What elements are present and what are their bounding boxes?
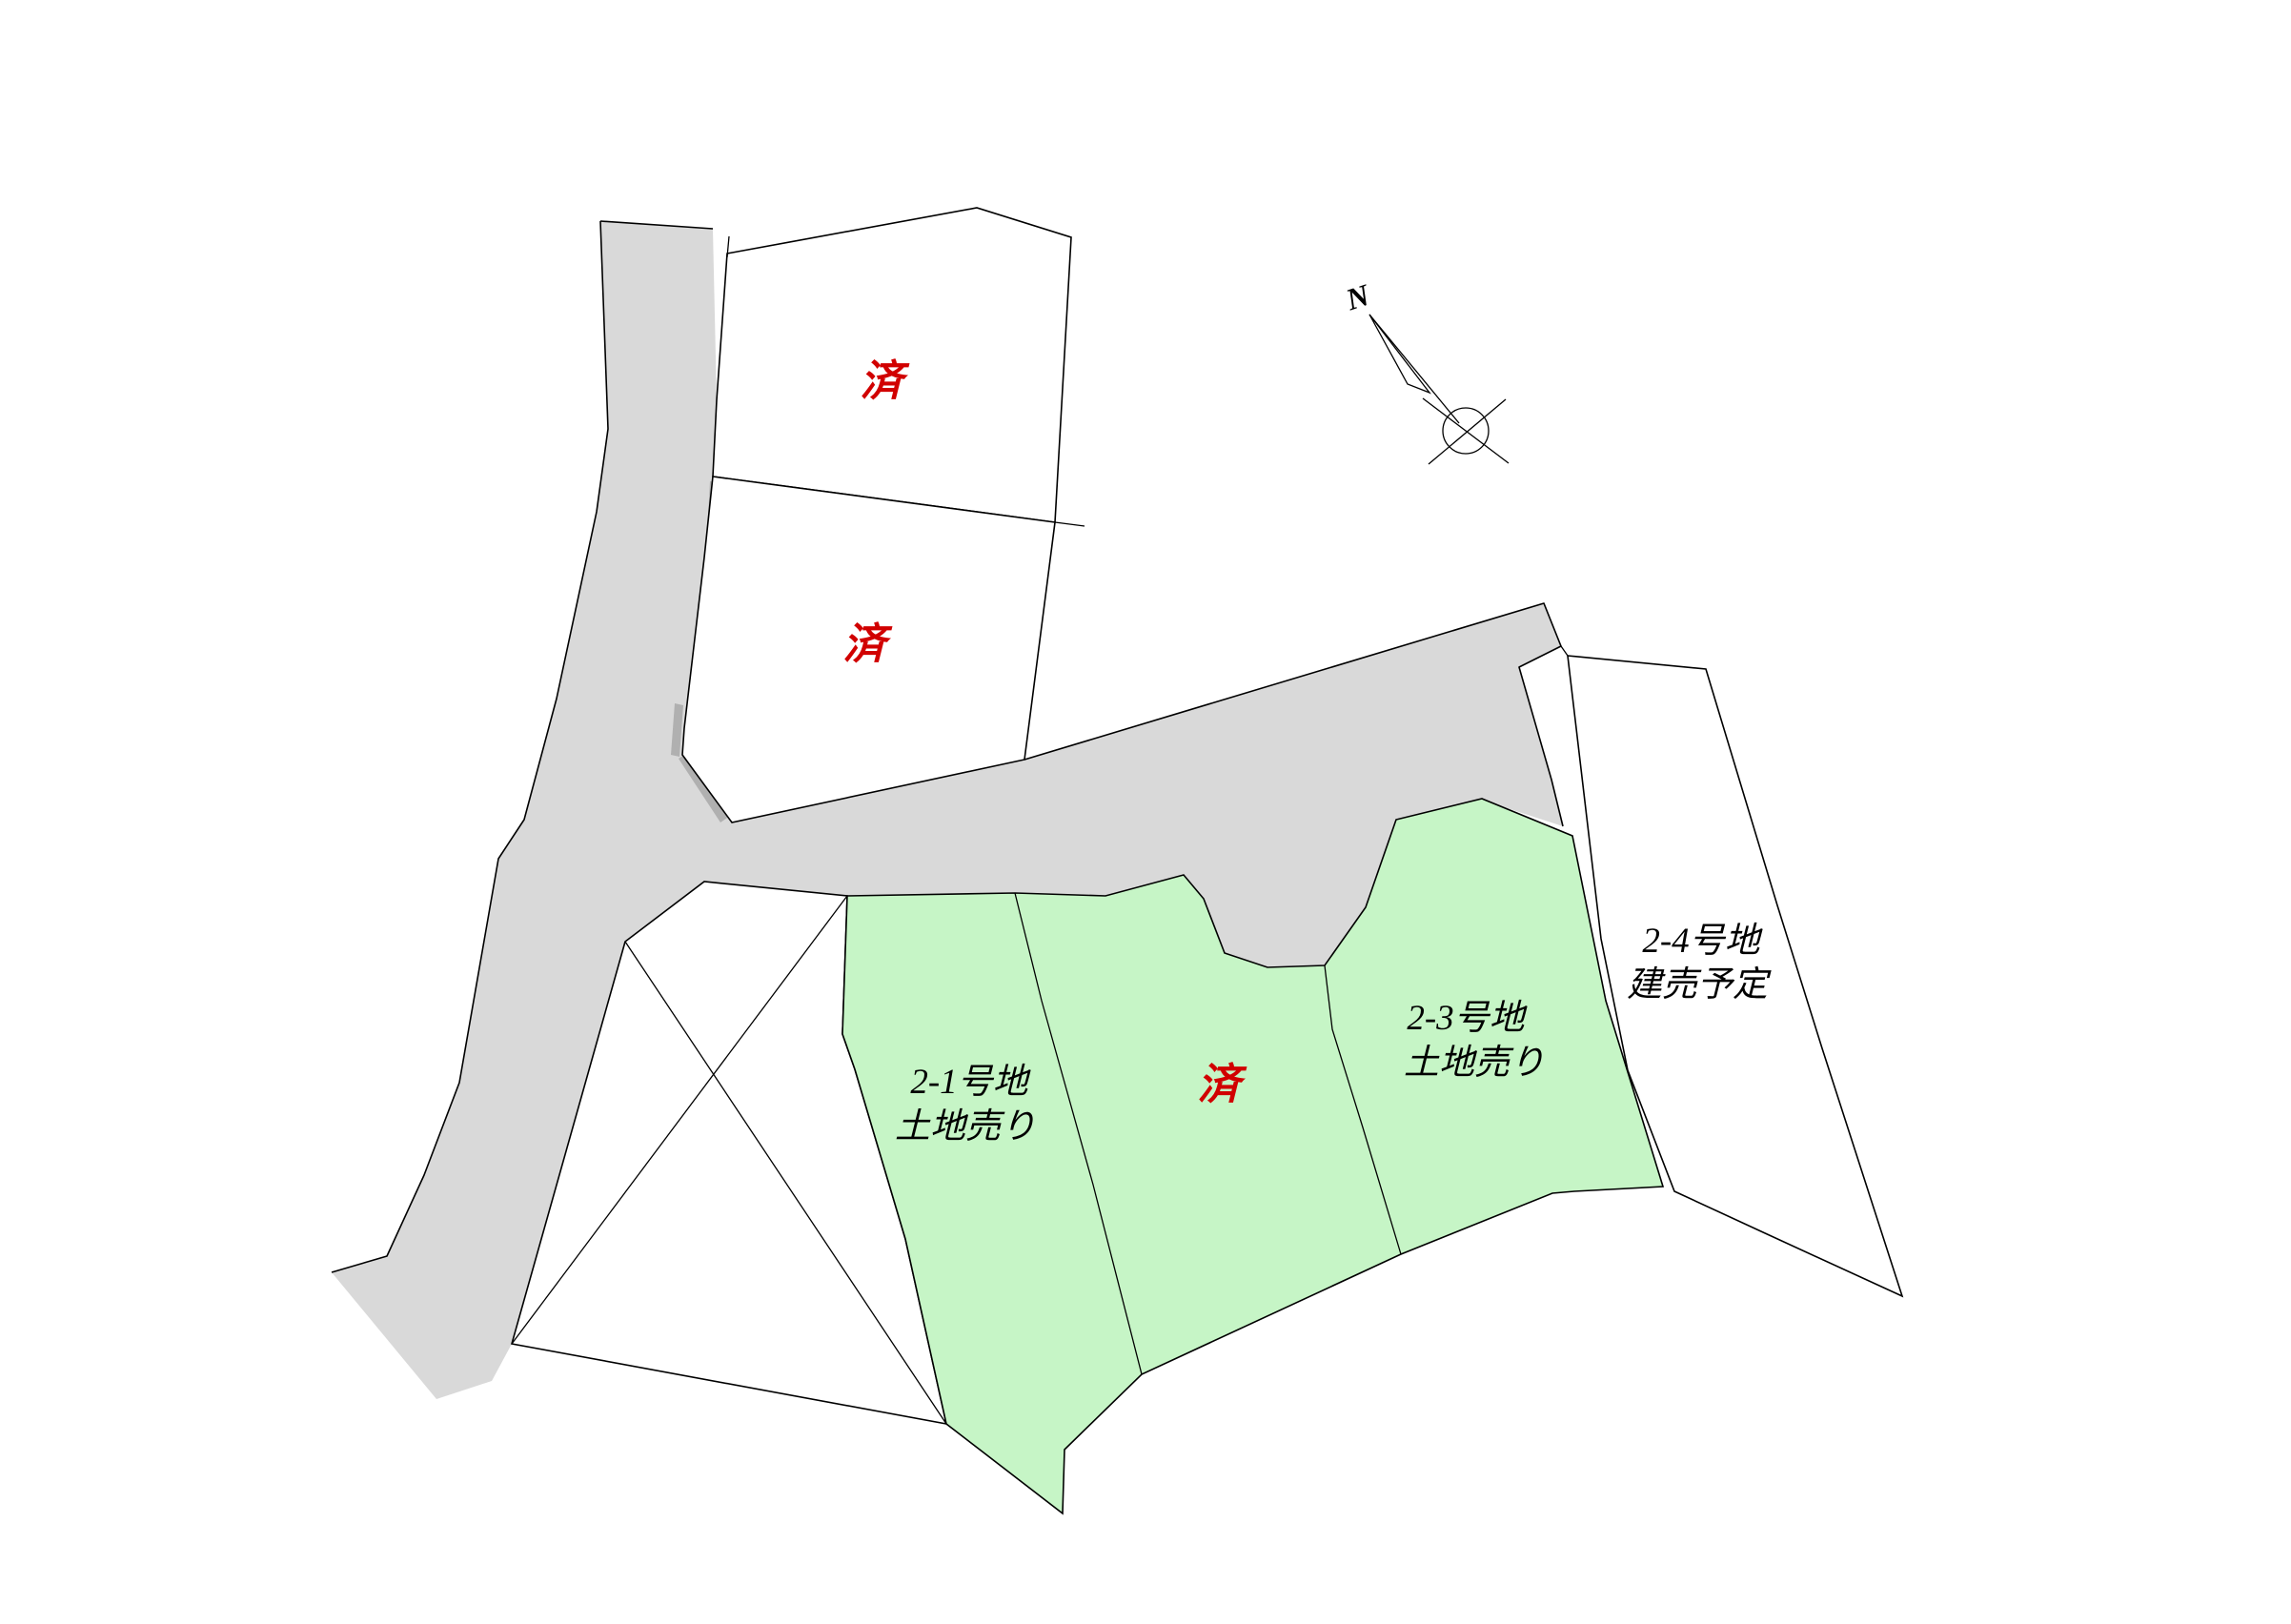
lot-2-4-status: 建売予定 — [1627, 965, 1772, 1005]
lot-2-1-status: 土地売り — [895, 1107, 1036, 1147]
site-plan-map: N 済 済 済 2‐1号地 土地売り 2-3号地 土地売り 2‐4号地 建売予定 — [0, 0, 2291, 1624]
compass-cross-line-2 — [1429, 399, 1506, 464]
north-compass: N — [1341, 276, 1509, 464]
surveyor-tick-divider — [1055, 522, 1085, 526]
lot-2-1-name: 2‐1号地 — [910, 1063, 1031, 1102]
lot-2-3-status: 土地売り — [1404, 1044, 1545, 1083]
plot-map-drawing: N 済 済 済 2‐1号地 土地売り 2-3号地 土地売り 2‐4号地 建売予定 — [0, 0, 2291, 1624]
sold-label-upper: 済 — [860, 357, 909, 405]
compass-needle-shaft — [1369, 315, 1459, 423]
sold-label-center: 済 — [1197, 1061, 1247, 1108]
compass-north-label: N — [1341, 276, 1375, 316]
road-to-lot24-connector — [1561, 646, 1568, 656]
sold-label-lower: 済 — [842, 620, 892, 668]
lot-2-3-name: 2-3号地 — [1407, 999, 1528, 1038]
lot-2-4-name: 2‐4号地 — [1642, 922, 1763, 961]
